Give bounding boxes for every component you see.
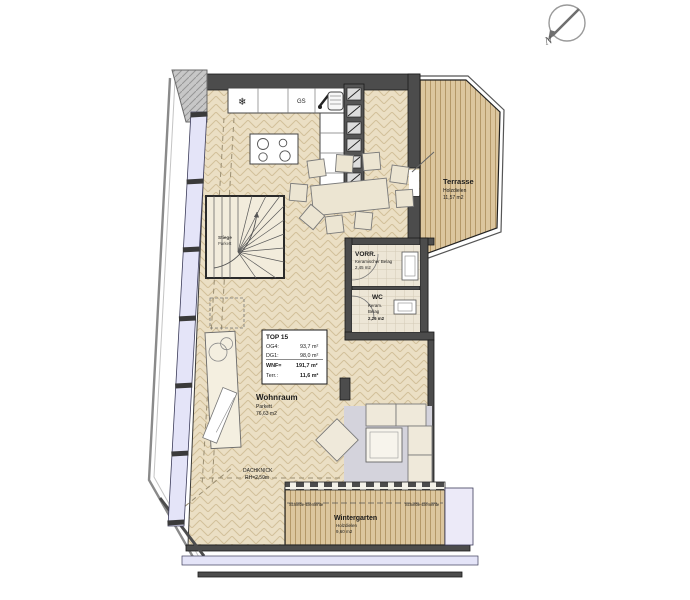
north-compass: N bbox=[542, 5, 585, 48]
vorr-name: VORR. bbox=[355, 251, 376, 258]
schiebe-elemente-left-label: Schiebe-Elemente bbox=[289, 502, 324, 507]
info-row-value: 191,7 m² bbox=[296, 363, 318, 369]
info-title: TOP 15 bbox=[266, 334, 289, 341]
stairs-name: Stiege bbox=[218, 235, 232, 240]
dachknick-label: DACHKNICK bbox=[243, 468, 273, 474]
wc-floor-2: Belag bbox=[368, 309, 380, 314]
chair bbox=[325, 215, 344, 234]
info-row-label: Terr.: bbox=[266, 373, 278, 379]
bottom-window-band bbox=[182, 556, 478, 565]
chair bbox=[335, 154, 353, 172]
dishwasher-label: GS bbox=[297, 99, 306, 105]
stairs: Stiege Parkett bbox=[206, 196, 284, 278]
wohnraum-area: 76,63 m2 bbox=[256, 411, 277, 417]
sofa-cushion bbox=[366, 404, 396, 426]
info-row-value: 98,0 m² bbox=[300, 353, 318, 359]
wohnraum-name: Wohnraum bbox=[256, 393, 298, 402]
window-post bbox=[167, 520, 184, 526]
window-post bbox=[190, 112, 207, 118]
wall-stub bbox=[340, 378, 350, 400]
wc-room: WC Keram. Belag 2,26 m2 bbox=[352, 290, 420, 332]
vorr-left-wall bbox=[345, 238, 352, 340]
bottom-edge-wall bbox=[198, 572, 462, 577]
info-row-label: DG1: bbox=[266, 353, 279, 359]
floor-plan-drawing: N DACHKNICK RH=2,50m Terrasse Holzdielen… bbox=[0, 0, 690, 600]
dachknick-height-label: RH=2,50m bbox=[245, 475, 269, 481]
wintergarten-name: Wintergarten bbox=[334, 515, 377, 522]
freezer-icon: ❄ bbox=[238, 97, 246, 108]
vorr-floor: Keramischer Belag bbox=[355, 259, 393, 264]
wohnraum-floor: Parkett bbox=[256, 404, 272, 410]
wintergarten: Schiebe-Elemente Schiebe-Elemente Winter… bbox=[285, 482, 473, 545]
floor-plan-page: N DACHKNICK RH=2,50m Terrasse Holzdielen… bbox=[0, 0, 690, 600]
vorraum-room: VORR. Keramischer Belag 2,45 m2 bbox=[352, 245, 420, 286]
info-row-value: 11,6 m² bbox=[300, 373, 318, 379]
sofa-cushion bbox=[408, 455, 432, 483]
stairs-floor: Parkett bbox=[218, 241, 232, 246]
terrace-wall-upper bbox=[408, 74, 420, 168]
sofa-cushion bbox=[408, 426, 432, 455]
chair bbox=[390, 165, 409, 184]
compass-circle bbox=[549, 5, 585, 41]
wintergarten-area: 9,60 m2 bbox=[336, 529, 353, 534]
wc-floor-1: Keram. bbox=[368, 303, 382, 308]
vorr-area: 2,45 m2 bbox=[355, 265, 371, 270]
terrace-floor: Holzdielen bbox=[443, 188, 467, 194]
wc-area: 2,26 m2 bbox=[368, 316, 385, 321]
vorr-right-wall bbox=[420, 238, 428, 340]
terrace: Terrasse Holzdielen 11,57 m2 bbox=[420, 76, 504, 261]
wintergarten-side-glazing bbox=[445, 488, 473, 545]
vorr-wc-divider-wall bbox=[352, 286, 420, 290]
wc-bottom-wall bbox=[345, 332, 434, 340]
chair bbox=[362, 152, 380, 170]
chair bbox=[354, 211, 373, 230]
bottom-sill-wall bbox=[186, 545, 470, 551]
wc-name: WC bbox=[372, 294, 383, 301]
schiebe-elemente-right-label: Schiebe-Elemente bbox=[405, 502, 440, 507]
window-post bbox=[183, 247, 200, 253]
info-row-value: 93,7 m² bbox=[300, 344, 318, 350]
chair bbox=[289, 183, 307, 201]
terrace-name: Terrasse bbox=[443, 177, 474, 186]
sofa-cushion bbox=[396, 404, 426, 426]
coffee-table bbox=[366, 428, 402, 462]
info-box: TOP 15 OG4: 93,7 m² DG1: 98,0 m² WNF= 19… bbox=[262, 330, 327, 384]
window-post bbox=[175, 383, 192, 389]
info-row-label: OG4: bbox=[266, 344, 279, 350]
info-row-label: WNF= bbox=[266, 363, 281, 369]
window-post bbox=[187, 179, 204, 185]
washbasin-icon bbox=[394, 300, 416, 314]
cooktop-island bbox=[250, 134, 298, 164]
glazing-mullions bbox=[285, 482, 445, 490]
window-post bbox=[179, 316, 196, 322]
wintergarten-floor: Holzdielen bbox=[336, 523, 358, 528]
chair bbox=[395, 189, 413, 207]
chair bbox=[307, 159, 326, 178]
window-post bbox=[171, 451, 188, 457]
terrace-area: 11,57 m2 bbox=[443, 195, 464, 201]
